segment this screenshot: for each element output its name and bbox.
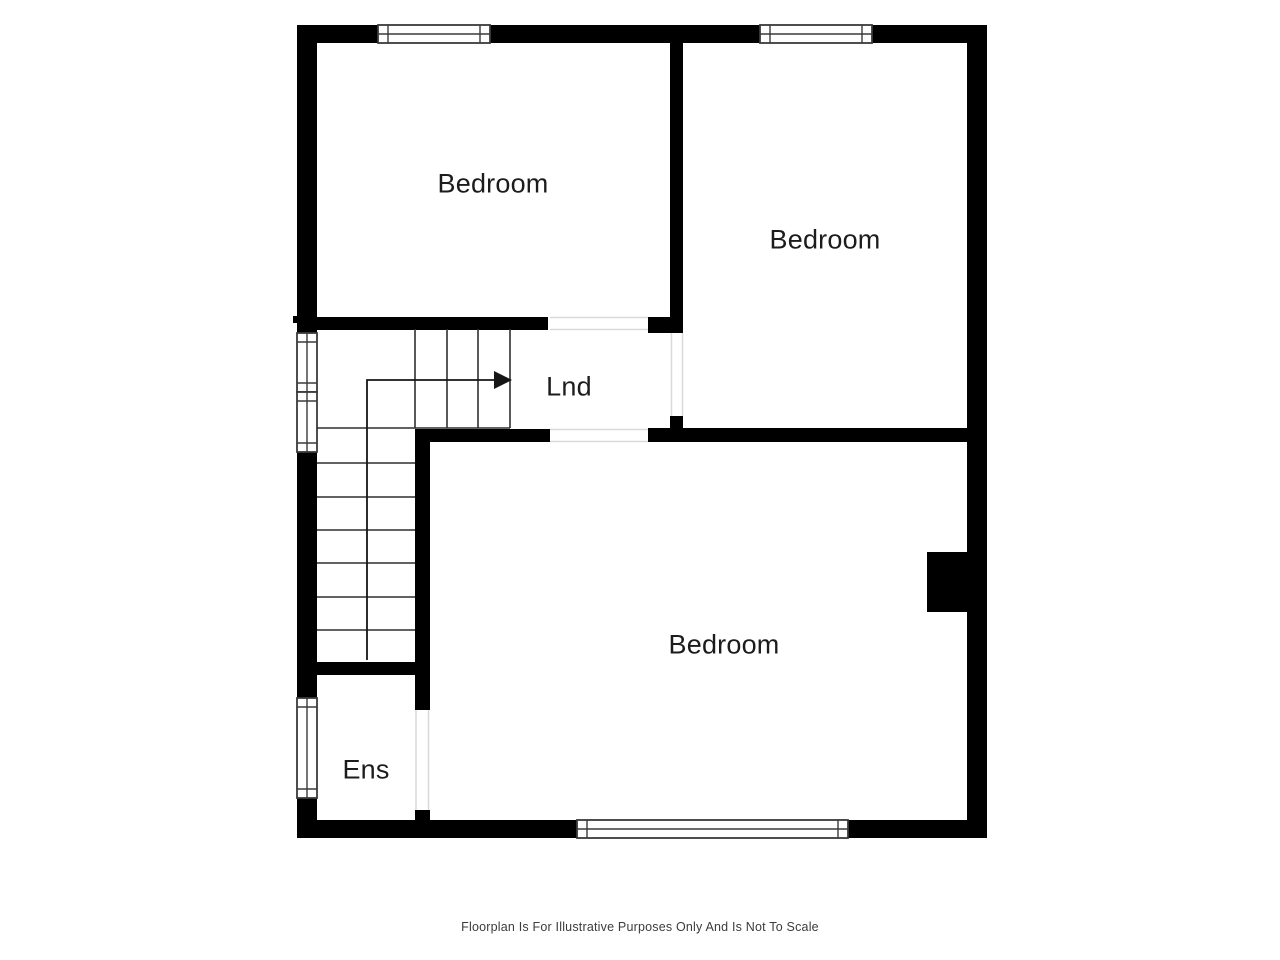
wall-outer-right: [967, 25, 987, 838]
staircase: [317, 329, 510, 630]
wall-bedroom1-bottom: [297, 317, 548, 330]
room-label-ensuite: Ens: [342, 757, 389, 784]
wall-ensuite-right-nub: [415, 810, 430, 822]
window-top-left: [378, 25, 490, 43]
window-left-stairs-upper: [297, 333, 317, 392]
wall-landing-bottom-nub: [670, 416, 683, 428]
opening-ensuite-door: [416, 710, 429, 810]
room-label-landing: Lnd: [546, 374, 592, 401]
room-label-bedroom-top-right: Bedroom: [770, 227, 881, 254]
floorplan-drawing: [0, 0, 1280, 960]
disclaimer-text: Floorplan Is For Illustrative Purposes O…: [0, 920, 1280, 934]
chimney-breast: [927, 552, 967, 612]
opening-bedroom-top-right: [672, 333, 683, 416]
wall-bedroom-divider-flare: [648, 317, 670, 333]
opening-bedroom-top-left: [550, 318, 648, 330]
floorplan-canvas: Bedroom Bedroom Lnd Bedroom Ens Floorpla…: [0, 0, 1280, 960]
window-top-right: [760, 25, 872, 43]
interior-walls: [297, 43, 967, 822]
room-label-bedroom-main: Bedroom: [669, 632, 780, 659]
opening-bedroom-main: [550, 430, 648, 442]
window-left-stairs-lower: [297, 392, 317, 452]
wall-stairs-bottom: [300, 662, 430, 675]
room-label-bedroom-top-left: Bedroom: [438, 171, 549, 198]
wall-landing-bottom-left: [417, 429, 550, 442]
window-bottom: [577, 820, 848, 838]
window-left-ensuite: [297, 698, 317, 798]
stairs-direction-arrow: [367, 371, 512, 660]
wall-bedroom-divider: [670, 43, 683, 333]
wall-landing-bottom-right: [648, 428, 967, 442]
